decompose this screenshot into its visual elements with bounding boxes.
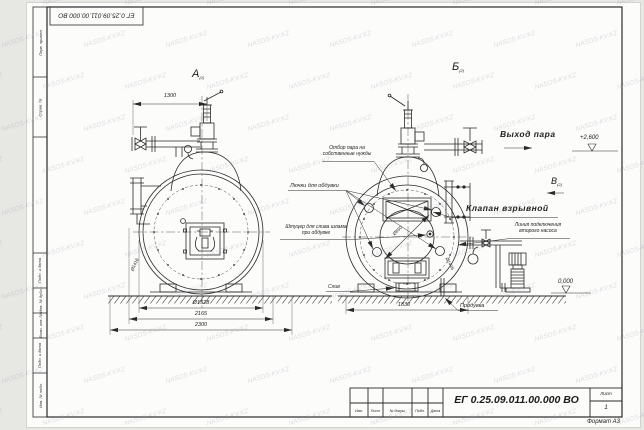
front-view-drawing: [130, 90, 263, 294]
rev-col-date: Дата: [428, 409, 443, 413]
elevation-steam: +2,600: [580, 135, 599, 142]
dim-width-mid: 2165: [178, 311, 224, 317]
rev-col-sign: Подп.: [412, 409, 428, 413]
margin-field-perv-primen: Перв. примен.: [33, 7, 47, 77]
top-stamp-doc-number: ЕГ 0.25.09.011.00.000 ВО: [50, 11, 143, 19]
elevation-ground: 0,000: [558, 279, 573, 286]
view-v-note: (2): [557, 182, 562, 187]
label-sludge-2: при обдувке: [278, 231, 354, 237]
dim-rear-width: 1830: [384, 302, 424, 308]
label-second-pump-line: Линия подключения второго насоса: [506, 223, 570, 235]
label-steam-outlet: Выход пара: [500, 129, 556, 139]
view-b-label: Б(2): [452, 61, 464, 74]
drawing-linework: [0, 0, 644, 430]
view-a-label: А(2): [192, 68, 204, 81]
view-v-label: В(2): [551, 176, 562, 188]
label-explosion-valve: Клапан взрывной: [466, 203, 549, 213]
dim-top-width: 1300: [156, 93, 184, 99]
margin-field-inv-dubl: Инв. № дубл.: [33, 288, 47, 313]
margin-fields-grid: [33, 7, 143, 417]
title-sheet-label: Лист: [590, 391, 622, 396]
rev-col-list: Лист: [368, 409, 383, 413]
margin-field-inv-podl: Инв. № подл.: [33, 373, 47, 417]
format-note: Формат А3: [540, 419, 620, 426]
label-blowdown: Продувка: [460, 303, 484, 309]
view-a-note: (2): [199, 75, 204, 80]
margin-field-sprav-no: Справ. №: [33, 77, 47, 137]
rear-view-drawing: [346, 94, 482, 298]
rev-col-izm: Изм.: [350, 409, 368, 413]
label-second-pump-line-2: второго насоса: [506, 229, 570, 235]
title-sheet-value: 1: [590, 404, 622, 412]
drawing-photo: А(2) Б(2) В(2) 1300 Ø1528 2165 2300 1830…: [0, 0, 644, 430]
dim-diameter: Ø1528: [178, 300, 224, 306]
label-steam-takeoff: Отбор пара на собственные нужды: [320, 146, 374, 158]
label-hatches: Лючки для обдувки: [290, 183, 339, 189]
rev-col-doc: № докум.: [383, 409, 412, 413]
margin-field-podp-data-2: Подп. и дата: [33, 338, 47, 373]
margin-field-podp-data-1: Подп. и дата: [33, 253, 47, 288]
label-steam-takeoff-2: собственные нужды: [320, 152, 374, 158]
elevation-marks: [551, 144, 618, 293]
label-drain: Слив: [328, 285, 340, 291]
view-b-note: (2): [459, 68, 464, 73]
margin-field-vzam-inv: Взам. инв. №: [33, 313, 47, 338]
dim-width-overall: 2300: [178, 322, 224, 328]
pump-assembly: [460, 230, 530, 292]
label-sludge-fitting: Штуцер для слива шлама при обдувке: [278, 225, 354, 237]
ground-hatch: [108, 296, 566, 304]
title-doc-number: ЕГ 0.25.09.011.00.000 ВО: [443, 394, 590, 406]
